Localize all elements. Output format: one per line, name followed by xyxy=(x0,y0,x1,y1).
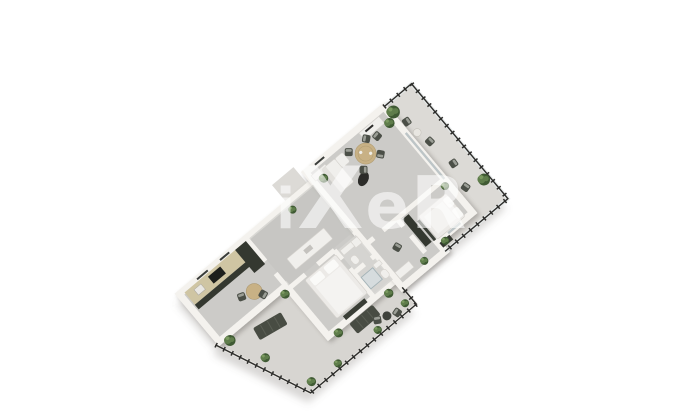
dining-chair xyxy=(362,134,371,143)
watermark-letter-i: i xyxy=(276,177,297,242)
terrace-chair xyxy=(373,315,382,324)
watermark-letter-e: e xyxy=(366,170,411,244)
watermark-letter-r: R xyxy=(411,161,468,245)
watermark: iXeR xyxy=(276,156,468,242)
watermark-letter-x: X xyxy=(297,149,365,249)
floorplan-render-canvas: iXeR xyxy=(0,0,700,420)
